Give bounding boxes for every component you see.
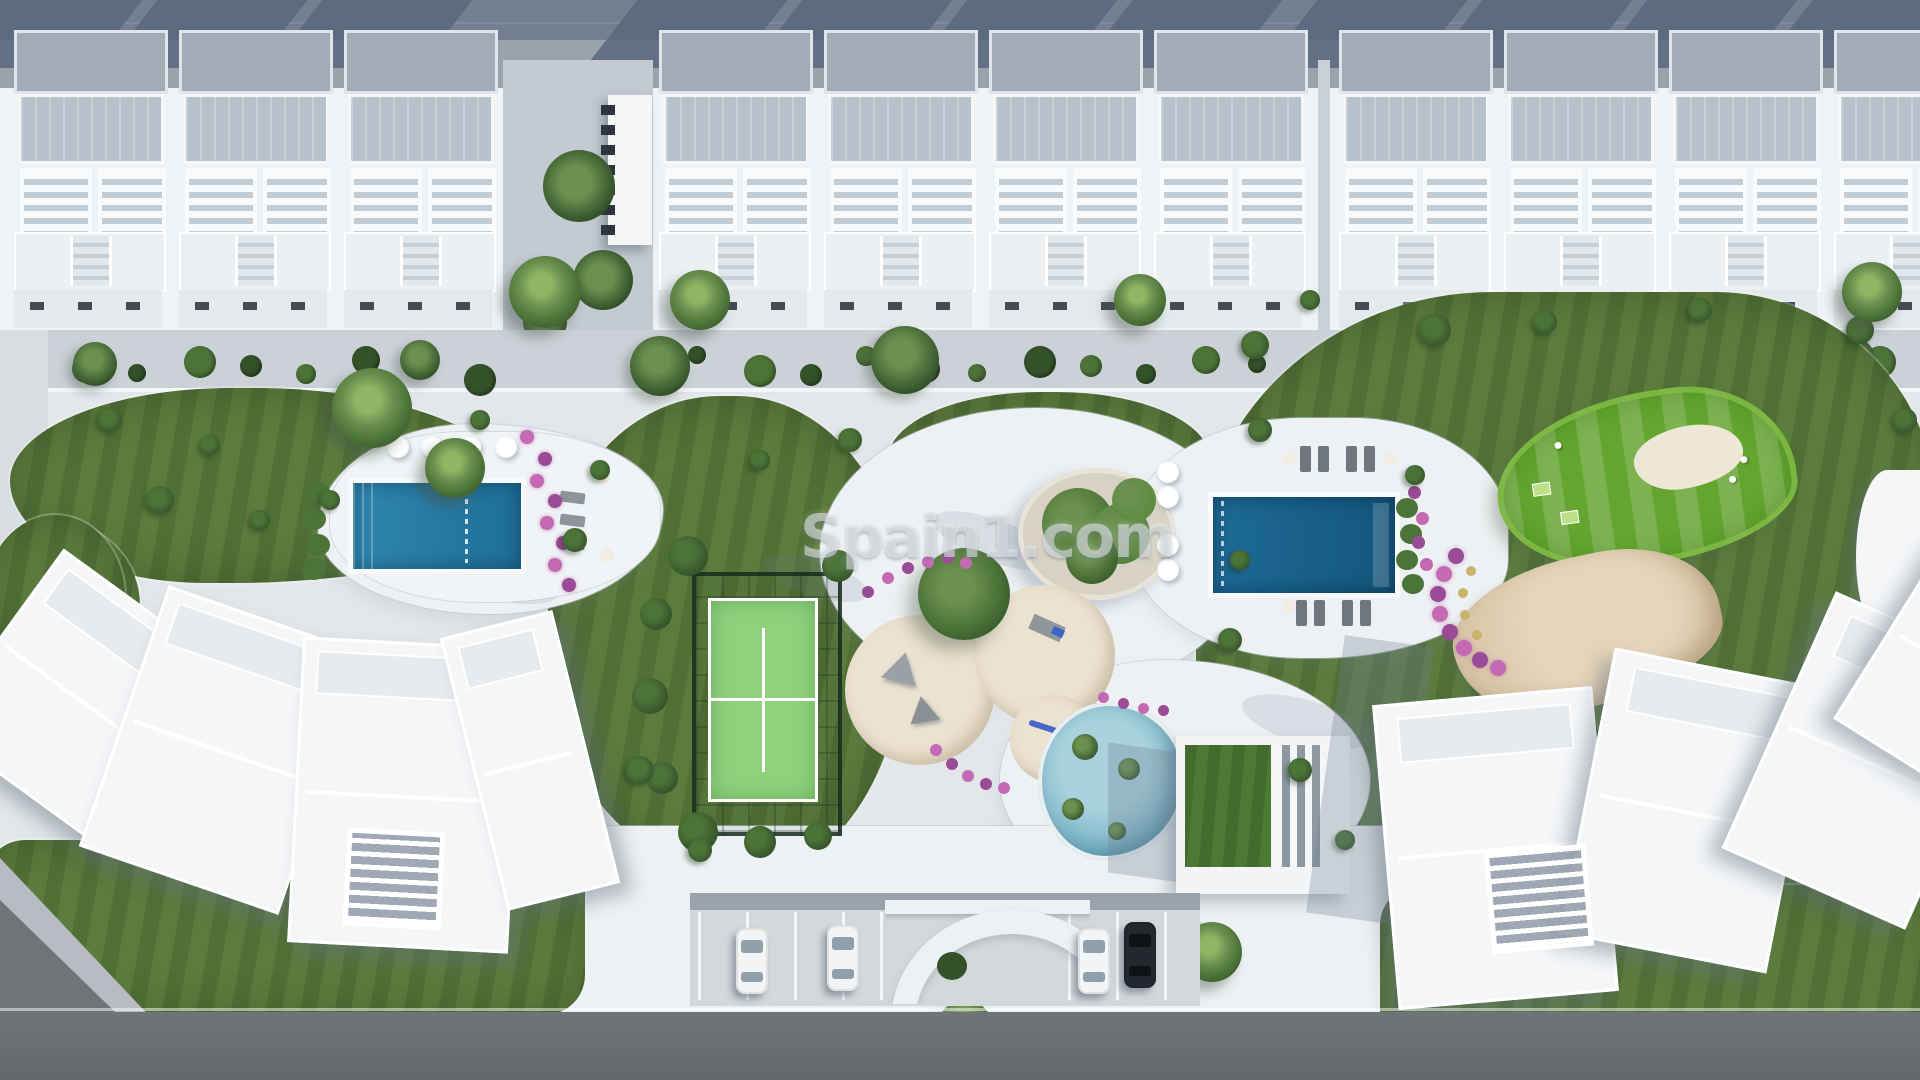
watermark: Spain1.com xyxy=(800,502,1174,572)
site-plan-render: Spain1.com xyxy=(0,0,1920,1080)
overlay-layer: Spain1.com xyxy=(0,0,1920,1080)
